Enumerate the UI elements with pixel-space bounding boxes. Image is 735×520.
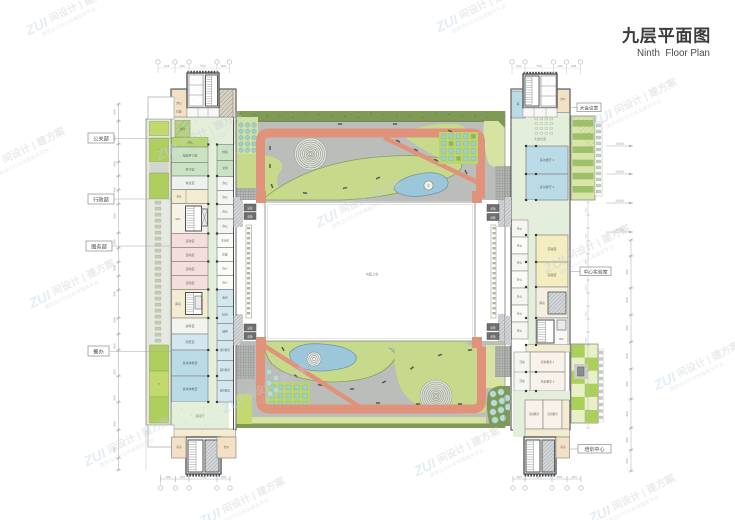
svg-text:◦: ◦	[547, 89, 548, 93]
svg-text:3900: 3900	[586, 233, 588, 239]
svg-text:库房: 库房	[539, 301, 545, 305]
svg-text:办公: 办公	[517, 312, 523, 316]
svg-text:茶水间: 茶水间	[221, 239, 229, 243]
svg-text:办公: 办公	[517, 227, 523, 231]
svg-text:◦: ◦	[192, 78, 193, 82]
svg-text:办公: 办公	[517, 278, 523, 282]
svg-text:档案: 档案	[222, 150, 228, 154]
svg-text:活动室: 活动室	[185, 252, 194, 257]
svg-text:WC: WC	[559, 337, 564, 341]
svg-text:3900: 3900	[113, 369, 117, 375]
svg-text:3900: 3900	[586, 389, 588, 395]
svg-text:办公: 办公	[517, 244, 523, 248]
svg-text:5700: 5700	[200, 476, 206, 479]
svg-text:Ninth Floor Plan: Ninth Floor Plan	[637, 48, 710, 59]
svg-text:办公: 办公	[517, 295, 523, 299]
svg-text:1625: 1625	[221, 476, 227, 479]
svg-text:多媒体教室: 多媒体教室	[182, 386, 197, 391]
svg-text:活动室: 活动室	[185, 266, 194, 271]
svg-text:4500: 4500	[625, 458, 629, 464]
svg-text:1450: 1450	[165, 476, 171, 479]
svg-text:4500: 4500	[625, 269, 629, 275]
svg-text:3900: 3900	[586, 363, 588, 369]
svg-text:设备: 设备	[247, 206, 253, 210]
svg-text:茶水: 茶水	[176, 195, 182, 199]
svg-text:资料室: 资料室	[185, 323, 194, 328]
svg-text:学习室: 学习室	[185, 167, 194, 172]
svg-text:3900: 3900	[586, 337, 588, 343]
svg-text:4500: 4500	[625, 325, 629, 331]
svg-text:3900: 3900	[113, 213, 117, 219]
svg-text:培训教室 1: 培训教室 1	[541, 360, 555, 364]
svg-text:餐办: 餐办	[93, 348, 103, 356]
svg-text:设备: 设备	[247, 326, 253, 330]
svg-text:大会议室: 大会议室	[534, 136, 546, 141]
svg-text:培训教室 2: 培训教室 2	[541, 380, 555, 384]
svg-text:ˣ˙: ˣ˙	[205, 423, 207, 427]
svg-text:1625: 1625	[571, 476, 577, 479]
svg-text:九层平面图: 九层平面图	[621, 27, 711, 46]
svg-text:3900: 3900	[113, 291, 117, 297]
svg-text:办公: 办公	[222, 281, 228, 285]
svg-text:设备: 设备	[247, 215, 253, 219]
svg-text:◦: ◦	[192, 98, 193, 102]
svg-text:行政部: 行政部	[93, 195, 109, 203]
svg-text:1625: 1625	[180, 476, 186, 479]
svg-text:办公: 办公	[224, 445, 230, 449]
svg-text:3900: 3900	[113, 395, 117, 401]
svg-text:ˣ˙: ˣ˙	[185, 421, 187, 425]
svg-text:3900: 3900	[586, 285, 588, 291]
svg-text:3900: 3900	[113, 421, 117, 427]
svg-text:1450: 1450	[179, 65, 185, 68]
svg-text:库: 库	[517, 102, 520, 106]
svg-text:库房: 库房	[176, 445, 182, 449]
svg-text:贮藏: 贮藏	[176, 110, 182, 114]
svg-text:4500: 4500	[625, 437, 629, 443]
svg-text:中心实验室: 中心实验室	[584, 269, 608, 276]
svg-text:大会议室: 大会议室	[580, 105, 599, 112]
svg-text:办公: 办公	[517, 329, 523, 333]
svg-text:4500: 4500	[625, 381, 629, 387]
svg-text:3900: 3900	[586, 311, 588, 317]
svg-text:3900: 3900	[586, 207, 588, 213]
svg-text:辅导教室: 辅导教室	[220, 389, 231, 393]
svg-text:办公: 办公	[222, 224, 228, 228]
svg-text:设备: 设备	[490, 216, 496, 220]
svg-text:1450: 1450	[557, 476, 563, 479]
svg-text:绿化: 绿化	[180, 127, 186, 131]
svg-text:办公: 办公	[222, 195, 228, 199]
svg-text:3900: 3900	[113, 317, 117, 323]
svg-text:接待厅: 接待厅	[195, 413, 204, 418]
svg-text:1625: 1625	[516, 65, 522, 68]
svg-text:办公: 办公	[222, 267, 228, 271]
svg-text:1625: 1625	[221, 65, 227, 68]
svg-text:3900: 3900	[113, 109, 117, 115]
svg-text:会议: 会议	[222, 296, 228, 300]
svg-text:1450: 1450	[557, 65, 563, 68]
svg-text:4500: 4500	[625, 297, 629, 303]
svg-text:3900: 3900	[113, 187, 117, 193]
svg-text:3900: 3900	[113, 343, 117, 349]
svg-text:ˣ˙: ˣ˙	[227, 128, 229, 132]
svg-text:办公: 办公	[222, 181, 228, 185]
svg-text:办公: 办公	[176, 101, 182, 105]
svg-text:5700: 5700	[537, 65, 543, 68]
svg-text:活动室: 活动室	[185, 280, 194, 285]
svg-text:设备: 设备	[490, 335, 496, 339]
svg-text:ˣ˙: ˣ˙	[191, 413, 193, 417]
svg-text:1625: 1625	[164, 65, 170, 68]
svg-text:辅导: 辅导	[222, 330, 228, 334]
svg-text:库房: 库房	[560, 445, 566, 449]
svg-text:中庭上空: 中庭上空	[366, 272, 379, 277]
svg-text:办公: 办公	[517, 261, 523, 265]
svg-text:实验室: 实验室	[547, 246, 556, 251]
svg-text:设备: 设备	[247, 335, 253, 339]
svg-text:多功能厅 2: 多功能厅 2	[540, 184, 555, 189]
svg-text:4500: 4500	[625, 353, 629, 359]
svg-text:辅导教室: 辅导教室	[220, 368, 231, 372]
svg-text:设备: 设备	[490, 326, 496, 330]
svg-text:办公: 办公	[560, 97, 566, 101]
svg-text:培训教室: 培训教室	[529, 412, 540, 416]
svg-text:培训教室: 培训教室	[547, 412, 558, 416]
svg-text:休息室: 休息室	[185, 180, 194, 185]
svg-text:活动: 活动	[519, 360, 525, 364]
svg-text:阅览室: 阅览室	[185, 339, 194, 344]
svg-text:公关部: 公关部	[93, 134, 109, 142]
svg-text:活动: 活动	[519, 379, 525, 383]
svg-text:WC: WC	[176, 217, 182, 221]
svg-text:ˣ˙: ˣ˙	[181, 407, 183, 411]
svg-text:辅导教室: 辅导教室	[220, 348, 231, 352]
svg-text:图务部: 图务部	[91, 242, 107, 250]
svg-text:5700: 5700	[200, 65, 206, 68]
svg-text:设备: 设备	[490, 207, 496, 211]
svg-text:贮藏: 贮藏	[222, 253, 228, 257]
svg-text:3900: 3900	[113, 239, 117, 245]
svg-text:库房: 库房	[175, 302, 181, 306]
svg-text:ˣ˙: ˣ˙	[213, 417, 215, 421]
svg-text:3900: 3900	[586, 415, 588, 421]
svg-text:3900: 3900	[113, 161, 117, 167]
svg-text:1625: 1625	[571, 65, 577, 68]
svg-text:3900: 3900	[113, 135, 117, 141]
svg-text:多功能厅 1: 多功能厅 1	[540, 157, 555, 162]
svg-text:ˣ˙: ˣ˙	[196, 119, 198, 123]
svg-text:4500: 4500	[625, 411, 629, 417]
svg-text:培训中心: 培训中心	[584, 446, 604, 453]
svg-text:文印: 文印	[222, 166, 228, 170]
svg-text:活动室: 活动室	[185, 238, 194, 243]
svg-text:◦: ◦	[192, 88, 193, 92]
svg-text:◦: ◦	[547, 79, 548, 83]
svg-text:5700: 5700	[536, 476, 542, 479]
svg-text:办公: 办公	[222, 210, 228, 214]
svg-text:ˣ˙: ˣ˙	[203, 406, 205, 410]
svg-text:1625: 1625	[516, 476, 522, 479]
svg-text:接待: 接待	[222, 313, 228, 317]
svg-text:多媒体教室: 多媒体教室	[182, 360, 197, 365]
